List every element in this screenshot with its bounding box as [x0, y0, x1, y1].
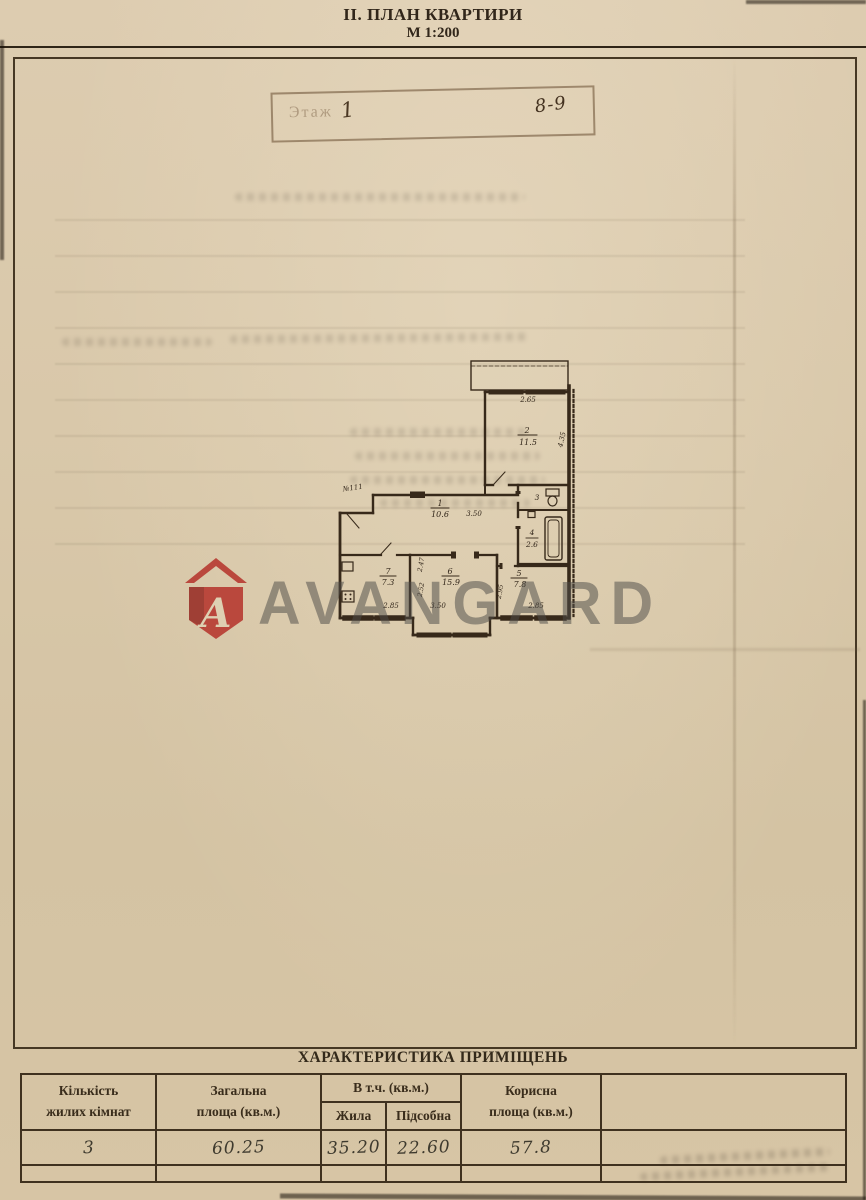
col-header-rooms-count-line2: жилих кімнат — [24, 1102, 153, 1123]
bleedthrough-artifact — [235, 193, 525, 201]
value-empty — [601, 1130, 846, 1165]
col-header-rooms-count: Кількість жилих кімнат — [21, 1074, 156, 1130]
col-header-useful-area-line2: площа (кв.м.) — [464, 1102, 598, 1123]
door-leaf — [494, 472, 505, 484]
col-header-empty — [601, 1074, 846, 1130]
logo-roof-icon — [185, 558, 247, 583]
characteristics-table: Кількість жилих кімнат Загальна площа (к… — [20, 1073, 847, 1183]
value-rooms-count-text: 3 — [82, 1137, 95, 1157]
value-rooms-count: 3 — [21, 1130, 156, 1165]
blank-cell — [461, 1165, 601, 1182]
dim-corridor: 3.50 — [466, 510, 482, 518]
value-auxiliary-area-text: 22.60 — [396, 1137, 450, 1159]
entrance-label: №111 — [341, 483, 363, 494]
stamp-floor-value: 1 — [339, 97, 356, 123]
room2-area: 11.5 — [519, 438, 537, 447]
col-header-including: В т.ч. (кв.м.) — [321, 1074, 461, 1102]
room4-area: 2.6 — [525, 540, 538, 549]
header-rule — [0, 46, 866, 48]
stamp-floor-label: Этаж — [289, 103, 333, 122]
blank-cell — [21, 1165, 156, 1182]
paper-fold — [733, 58, 736, 1044]
bathtub-icon — [545, 517, 562, 560]
plan-scale: М 1:200 — [0, 25, 866, 42]
value-living-area-text: 35.20 — [326, 1137, 380, 1159]
blank-cell — [601, 1165, 846, 1182]
photo-edge — [0, 40, 4, 260]
col-header-useful-area-line1: Корисна — [464, 1081, 598, 1102]
col-header-total-area-line1: Загальна — [159, 1081, 318, 1102]
col-header-living: Жила — [321, 1102, 386, 1130]
value-total-area-text: 60.25 — [211, 1137, 265, 1159]
avangard-logo-icon: A — [182, 556, 250, 640]
value-auxiliary-area: 22.60 — [386, 1130, 461, 1165]
value-living-area: 35.20 — [321, 1130, 386, 1165]
sink-icon — [528, 512, 535, 518]
value-useful-area: 57.8 — [461, 1130, 601, 1165]
photo-edge — [280, 1193, 866, 1200]
col-header-total-area-line2: площа (кв.м.) — [159, 1102, 318, 1123]
toilet-icon — [546, 489, 559, 496]
value-useful-area-text: 57.8 — [510, 1137, 553, 1158]
floor-stamp: Этаж 1 8-9 — [270, 85, 595, 142]
watermark-brand: AVANGARD — [258, 568, 662, 639]
col-header-useful-area: Корисна площа (кв.м.) — [461, 1074, 601, 1130]
page-title: ІІ. ПЛАН КВАРТИРИ — [0, 5, 866, 25]
blank-cell — [321, 1165, 386, 1182]
room1-area: 10.6 — [431, 510, 449, 519]
toilet-icon — [548, 496, 557, 506]
col-header-total-area: Загальна площа (кв.м.) — [156, 1074, 321, 1130]
col-header-rooms-count-line1: Кількість — [24, 1081, 153, 1102]
door-leaf — [381, 543, 391, 554]
room2-number: 2 — [523, 426, 529, 435]
paper-crease — [590, 648, 860, 651]
blank-cell — [156, 1165, 321, 1182]
photo-edge — [746, 0, 866, 4]
logo-letter: A — [196, 590, 231, 637]
bleedthrough-artifact — [62, 338, 212, 346]
room3-number: 3 — [535, 493, 540, 502]
room1-number: 1 — [437, 499, 442, 508]
room4-number: 4 — [529, 528, 535, 537]
balcony — [471, 361, 568, 390]
stamp-flat-range: 8-9 — [534, 92, 568, 117]
value-total-area: 60.25 — [156, 1130, 321, 1165]
col-header-auxiliary: Підсобна — [386, 1102, 461, 1130]
blank-cell — [386, 1165, 461, 1182]
table-title: ХАРАКТЕРИСТИКА ПРИМІЩЕНЬ — [0, 1049, 866, 1067]
dim-top-width: 2.65 — [519, 396, 536, 404]
entrance-door-leaf — [347, 514, 359, 528]
dim-room2-depth: 4.35 — [556, 431, 567, 449]
scanned-document-page: ІІ. ПЛАН КВАРТИРИ М 1:200 Этаж 1 8-9 — [0, 0, 866, 1200]
